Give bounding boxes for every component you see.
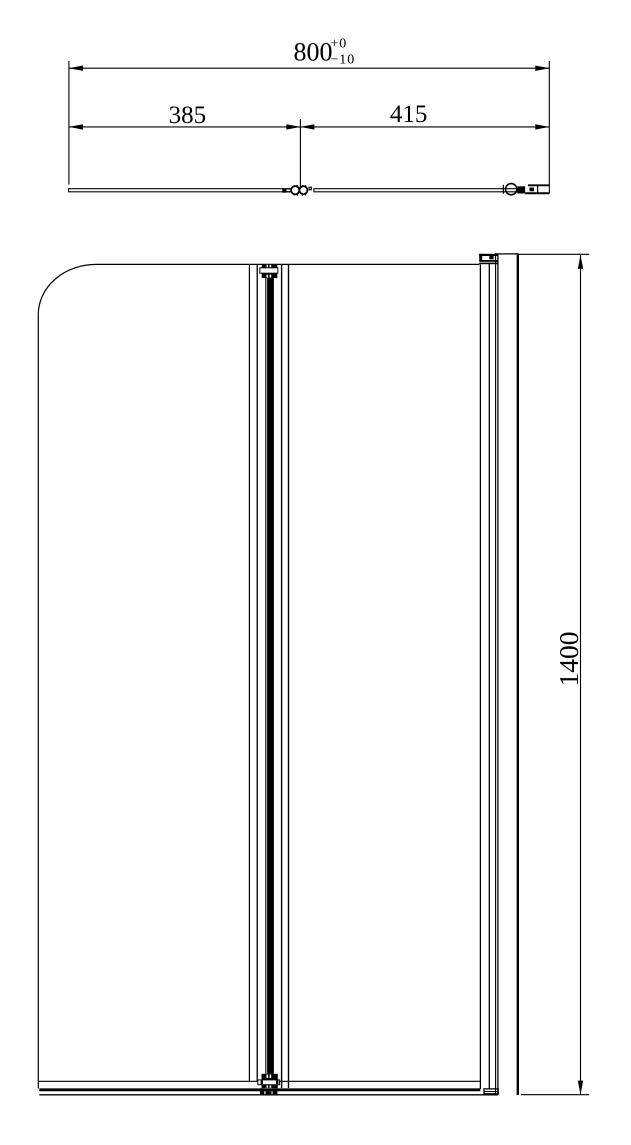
svg-text:+0: +0	[331, 37, 348, 52]
svg-text:800: 800	[294, 38, 333, 67]
svg-text:1400: 1400	[553, 632, 584, 687]
svg-text:−10: −10	[331, 53, 356, 68]
svg-text:385: 385	[169, 102, 207, 129]
svg-text:415: 415	[390, 101, 428, 128]
